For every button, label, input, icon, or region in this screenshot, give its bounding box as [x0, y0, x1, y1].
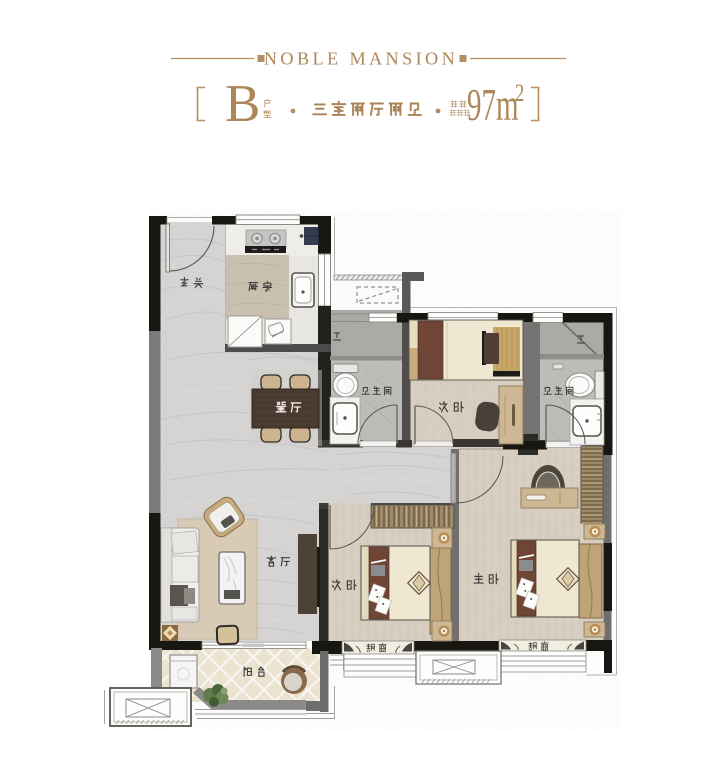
svg-text:97m: 97m [467, 81, 519, 131]
svg-text:2: 2 [515, 78, 524, 106]
svg-text:NOBLE MANSION: NOBLE MANSION [264, 49, 458, 69]
svg-text:B: B [225, 75, 260, 133]
